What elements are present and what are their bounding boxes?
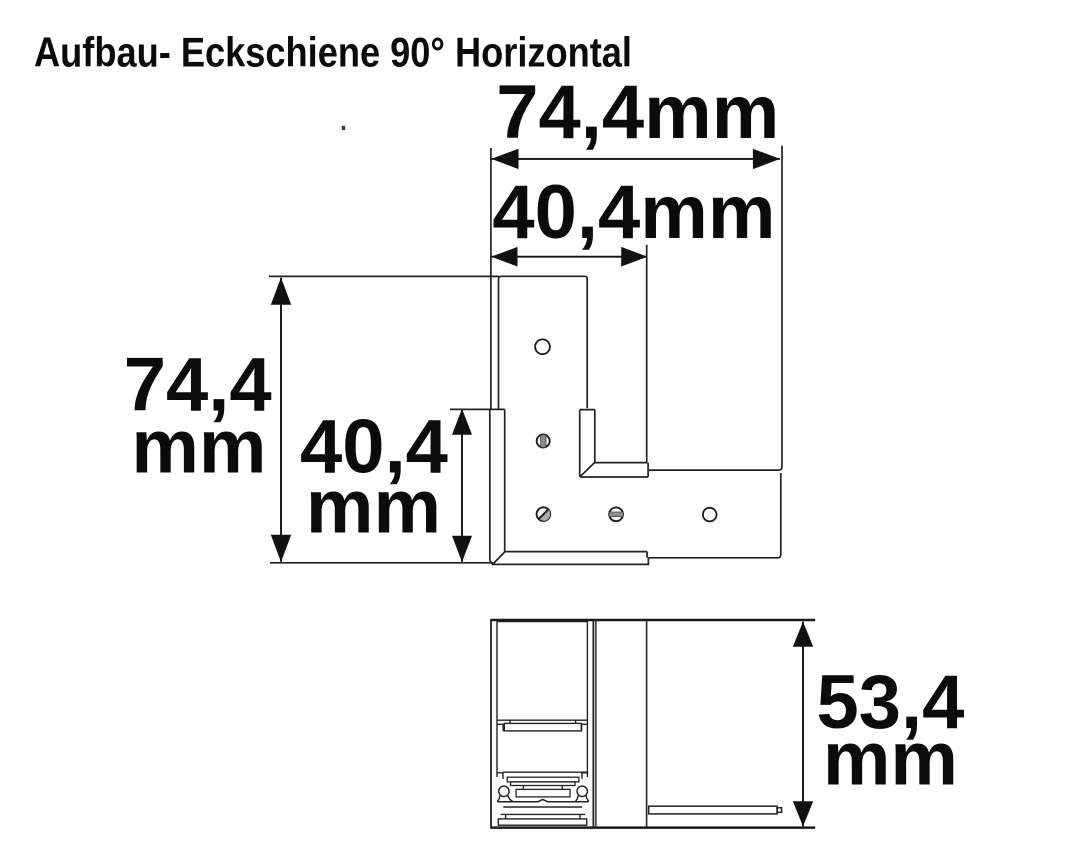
svg-text:74,4mm: 74,4mm [496, 70, 779, 155]
svg-text:mm: mm [306, 465, 441, 550]
svg-text:mm: mm [823, 716, 958, 801]
svg-text:40,4mm: 40,4mm [492, 170, 775, 255]
svg-text:Aufbau- Eckschiene 90° Horizon: Aufbau- Eckschiene 90° Horizontal [34, 29, 632, 76]
svg-text:mm: mm [131, 404, 266, 489]
